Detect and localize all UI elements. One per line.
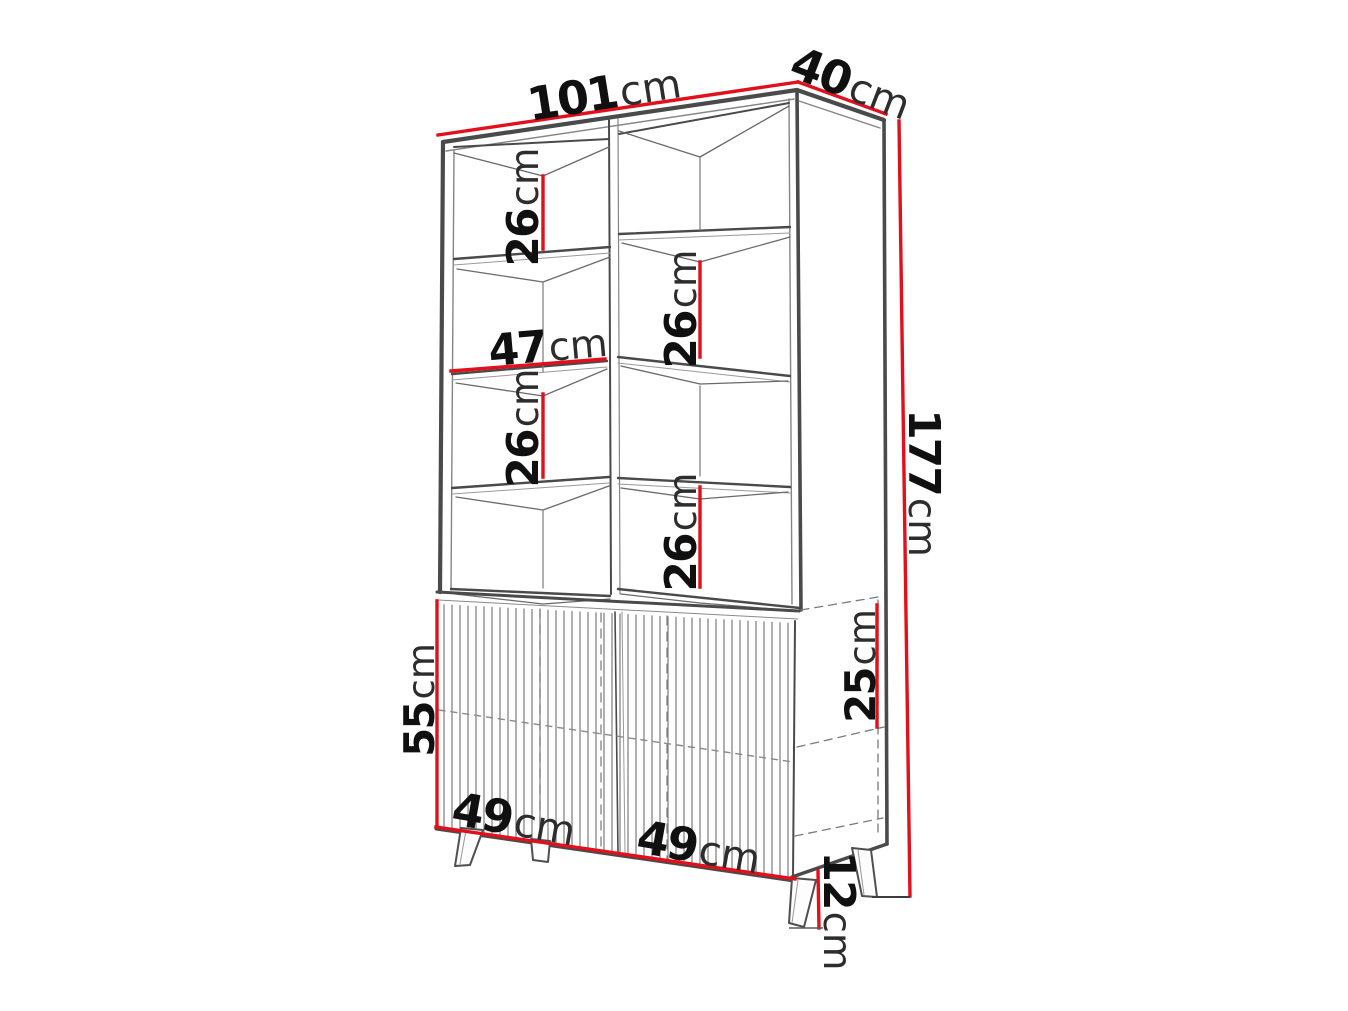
dim-value: 177	[898, 409, 949, 495]
dim-total-height: 177cm	[901, 409, 945, 557]
dim-value: 26	[498, 209, 549, 266]
dim-shelf-gap-left-lower: 26cm	[502, 368, 546, 487]
dim-unit: cm	[661, 249, 706, 308]
dim-leg-height: 12cm	[816, 851, 860, 970]
dim-unit: cm	[400, 643, 443, 699]
dim-unit: cm	[503, 368, 548, 427]
front-right-leg	[789, 878, 816, 927]
dim-unit: cm	[510, 797, 579, 855]
dim-value: 25	[836, 668, 885, 722]
dim-unit: cm	[695, 825, 764, 883]
furniture-dimension-diagram: 101cm 40cm 177cm 26cm 26cm 47cm 26cm 26c…	[0, 0, 1348, 1011]
dim-unit: cm	[547, 321, 610, 371]
dim-base-height: 55cm	[399, 643, 441, 757]
dim-unit: cm	[503, 147, 548, 206]
dim-value: 49	[448, 782, 516, 846]
dim-value: 26	[656, 311, 707, 368]
dim-unit: cm	[661, 472, 706, 531]
dim-unit: cm	[841, 609, 884, 665]
dim-shelf-gap-right-upper: 26cm	[660, 249, 704, 368]
dim-shelf-gap-right-lower: 26cm	[660, 472, 704, 591]
dim-value: 49	[633, 810, 701, 874]
dim-unit: cm	[899, 498, 944, 557]
dim-shelf-gap-left-upper: 26cm	[502, 147, 546, 266]
dim-inner-shelf-width: 47cm	[487, 320, 610, 374]
dim-base-compartment: 25cm	[840, 609, 882, 723]
dim-value: 55	[395, 702, 444, 756]
dim-value: 26	[498, 430, 549, 487]
dim-unit: cm	[616, 59, 684, 116]
dim-value: 12	[813, 851, 864, 908]
dim-unit: cm	[814, 912, 859, 971]
dim-value: 26	[656, 534, 707, 591]
